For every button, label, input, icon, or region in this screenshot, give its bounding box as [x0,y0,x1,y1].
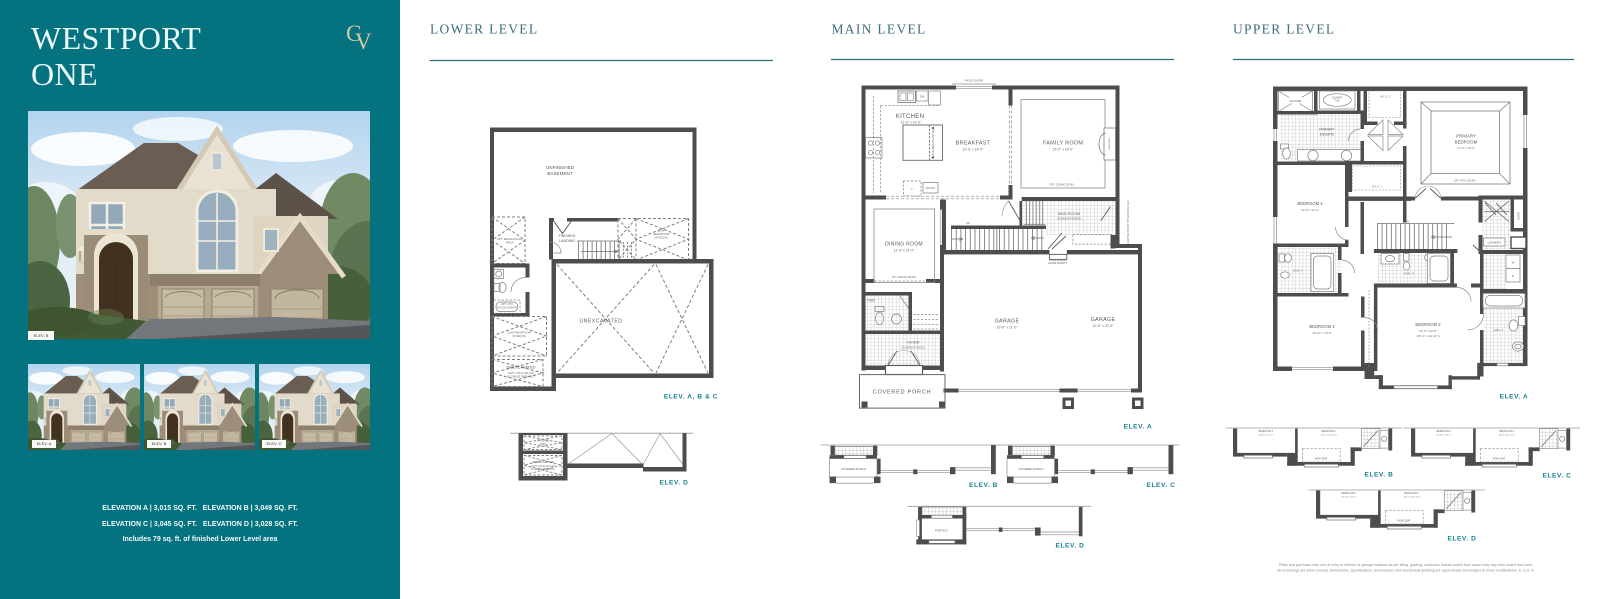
svg-text:(IF REQ'D): (IF REQ'D) [654,236,668,240]
svg-text:OPT. DOOR WHERE GRADE PERMITS: OPT. DOOR WHERE GRADE PERMITS [1126,200,1129,244]
svg-text:UNEXCAVATED: UNEXCAVATED [506,365,535,370]
svg-text:MUD ROOM: MUD ROOM [1058,212,1080,216]
svg-text:BEDROOM: BEDROOM [1455,140,1478,145]
svg-text:ELEV. D: ELEV. D [1056,543,1085,550]
svg-text:ELEV. D: ELEV. D [660,480,689,487]
svg-text:PRIMARY: PRIMARY [1456,134,1476,139]
svg-text:BEDROOM 3: BEDROOM 3 [1259,430,1274,433]
svg-text:LOWER LEVEL: LOWER LEVEL [430,22,538,37]
svg-text:LINEN: LINEN [1517,212,1521,220]
svg-text:ELEV. C: ELEV. C [1543,473,1572,480]
svg-text:14'-10" x 10'-0": 14'-10" x 10'-0" [1258,435,1273,437]
svg-text:ELEV. A: ELEV. A [1500,394,1529,401]
svg-text:(IF REQ'D): (IF REQ'D) [512,334,526,338]
svg-text:FINISHED: FINISHED [559,234,576,238]
svg-text:BEDROOM 4: BEDROOM 4 [1297,201,1323,206]
svg-text:COVERED PORCH: COVERED PORCH [841,467,866,471]
svg-text:WDW SEAT: WDW SEAT [1315,458,1329,461]
svg-text:DINING ROOM: DINING ROOM [885,242,923,248]
svg-text:ELEV. C: ELEV. C [1147,482,1176,489]
svg-text:IF GRADE PERMITS.): IF GRADE PERMITS.) [507,375,534,379]
svg-text:IF GRADE PERMITS.): IF GRADE PERMITS.) [531,468,555,471]
svg-text:ENSUITE: ENSUITE [1320,133,1335,137]
svg-text:ENS. 3: ENS. 3 [1404,272,1414,276]
svg-text:MAIN LEVEL: MAIN LEVEL [832,22,927,37]
svg-text:OPT. CEILING DETAIL: OPT. CEILING DETAIL [1050,184,1075,187]
svg-text:BEDROOM 2: BEDROOM 2 [1415,322,1441,327]
svg-text:All renderings are artist conc: All renderings are artist concept. Dimen… [1277,569,1535,573]
svg-text:W.I.C. 1: W.I.C. 1 [1372,185,1382,189]
svg-text:SHOWER: SHOWER [1290,99,1302,103]
svg-text:BREAKFAST: BREAKFAST [956,141,991,147]
svg-text:UP: UP [966,221,970,225]
svg-text:ELEV. A, B & C: ELEV. A, B & C [664,394,718,401]
svg-text:(SUNKEN IF REQ'D): (SUNKEN IF REQ'D) [1057,218,1081,221]
svg-text:(OPT. COLD CELLAR: (OPT. COLD CELLAR [508,371,534,375]
svg-text:PORTICO: PORTICO [935,529,949,533]
svg-text:BASEMENT: BASEMENT [547,171,572,176]
svg-text:LANDING: LANDING [559,239,575,243]
svg-text:BEDROOM 3: BEDROOM 3 [1309,324,1335,329]
svg-text:10'-6" x 14'-0": 10'-6" x 14'-0" [963,148,985,152]
svg-text:UPPER LEVEL: UPPER LEVEL [1233,22,1335,37]
svg-text:PANTRY: PANTRY [926,187,936,190]
svg-text:OPT. SINK: OPT. SINK [1522,263,1524,274]
svg-text:UNFINISHED: UNFINISHED [546,165,575,170]
svg-text:FAMILY ROOM: FAMILY ROOM [1043,141,1083,147]
svg-text:AREA: AREA [540,443,547,446]
svg-text:FOYER: FOYER [906,341,919,345]
svg-text:UNEXCAVATED: UNEXCAVATED [580,319,623,325]
svg-text:PATIO DOOR: PATIO DOOR [965,79,984,83]
svg-text:Plans and purchase may vary at: Plans and purchase may vary at entry or … [1279,563,1533,567]
svg-text:DOOR WHERE: DOOR WHERE [1049,260,1066,262]
svg-text:F: F [911,187,913,191]
svg-text:ELEV. B: ELEV. B [969,482,998,489]
svg-text:GARAGE: GARAGE [995,319,1020,325]
svg-text:TUB: TUB [1335,100,1340,103]
svg-text:15'-4" x (14'-11"): 15'-4" x (14'-11") [1321,435,1337,437]
svg-text:PWD: PWD [868,299,876,303]
svg-text:19'-6" x 21'-0": 19'-6" x 21'-0" [997,326,1019,330]
svg-text:AREA: AREA [506,241,514,245]
svg-text:OPT. TRAY CEILING: OPT. TRAY CEILING [1454,180,1476,183]
svg-text:14'-10" x 10'-0": 14'-10" x 10'-0" [1312,331,1331,335]
svg-text:ENS. 4: ENS. 4 [1293,269,1303,273]
svg-text:W.I.C. 2: W.I.C. 2 [1380,95,1390,99]
svg-text:10'-6" x 12'-0": 10'-6" x 12'-0" [1301,208,1319,212]
svg-text:ROUGH-IN BATH: ROUGH-IN BATH [497,305,518,309]
svg-text:17'-6" x 16'-6": 17'-6" x 16'-6" [1457,146,1475,150]
svg-text:(15'-4" x (14'-11")): (15'-4" x (14'-11")) [1416,334,1439,338]
svg-text:PRIMARY: PRIMARY [1319,128,1335,132]
svg-text:W: W [1512,261,1515,265]
svg-text:(SUNKEN IF REQ'D): (SUNKEN IF REQ'D) [901,347,925,350]
svg-text:UNEXCAVATED: UNEXCAVATED [532,460,555,464]
svg-text:OPT. CEILING DETAIL: OPT. CEILING DETAIL [892,276,917,279]
svg-text:BEDROOM 2: BEDROOM 2 [1321,430,1336,433]
svg-text:COVERED PORCH: COVERED PORCH [873,390,932,396]
svg-text:EAT-IN BREAKFAST BAR: EAT-IN BREAKFAST BAR [931,127,935,158]
svg-text:DW: DW [920,95,925,99]
svg-text:ELEV. D: ELEV. D [1448,536,1477,543]
svg-text:ELEV. A: ELEV. A [1124,424,1153,431]
svg-text:10'-6" x 20'-6": 10'-6" x 20'-6" [1093,324,1115,328]
svg-text:FIREPLACE: FIREPLACE [1108,137,1111,150]
svg-text:11'-0" x 14'-0": 11'-0" x 14'-0" [901,121,922,125]
svg-text:15'-6" x 18'-0": 15'-6" x 18'-0" [1053,148,1075,152]
svg-text:ELEV. B: ELEV. B [1365,472,1394,479]
svg-text:GARAGE: GARAGE [1091,317,1116,323]
svg-text:KITCHEN: KITCHEN [896,114,924,120]
svg-text:DN: DN [1405,220,1409,224]
svg-text:16'-0" x 12'-5": 16'-0" x 12'-5" [1419,329,1437,333]
svg-text:LAUNDRY: LAUNDRY [1488,241,1502,245]
svg-text:GRADE PERMITS: GRADE PERMITS [1048,262,1067,265]
svg-text:11'-4" x 14'-0": 11'-4" x 14'-0" [894,249,915,253]
svg-text:ENS. 2: ENS. 2 [1494,328,1504,332]
